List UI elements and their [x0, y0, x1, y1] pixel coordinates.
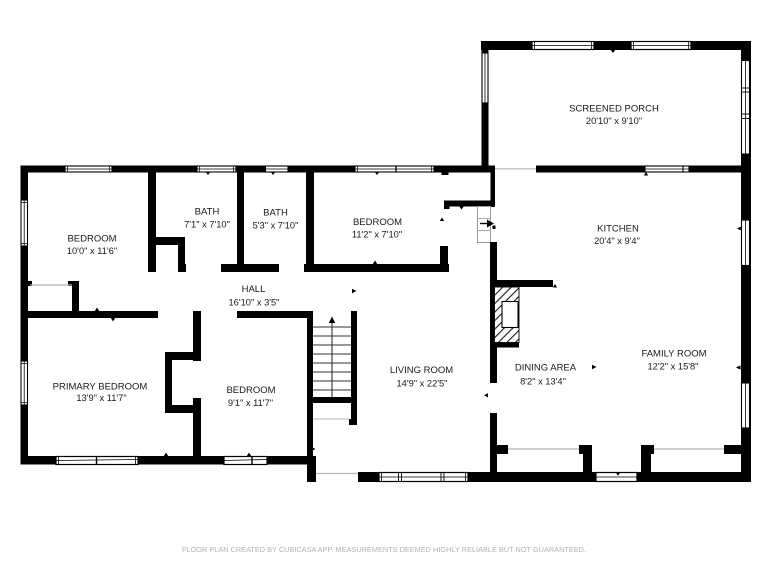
svg-text:20'10" x 9'10": 20'10" x 9'10": [586, 116, 642, 126]
svg-text:DINING AREA: DINING AREA: [515, 363, 577, 374]
svg-text:BEDROOM: BEDROOM: [353, 217, 402, 228]
svg-text:FAMILY ROOM: FAMILY ROOM: [641, 349, 706, 360]
svg-text:10'0" x 11'6": 10'0" x 11'6": [67, 246, 117, 256]
svg-text:FLOOR PLAN CREATED BY CUBICASA: FLOOR PLAN CREATED BY CUBICASA APP. MEAS…: [182, 545, 586, 554]
svg-text:BEDROOM: BEDROOM: [226, 385, 275, 396]
svg-text:KITCHEN: KITCHEN: [597, 224, 639, 235]
svg-text:SCREENED PORCH: SCREENED PORCH: [569, 104, 659, 115]
svg-text:PRIMARY BEDROOM: PRIMARY BEDROOM: [53, 382, 148, 393]
svg-text:20'4" x 9'4": 20'4" x 9'4": [594, 236, 640, 246]
svg-text:HALL: HALL: [242, 284, 266, 295]
svg-text:7'1" x 7'10": 7'1" x 7'10": [184, 220, 230, 230]
svg-text:BEDROOM: BEDROOM: [67, 234, 116, 245]
svg-text:8'2" x 13'4": 8'2" x 13'4": [520, 377, 566, 387]
svg-text:BATH: BATH: [263, 208, 288, 219]
svg-text:16'10" x 3'5": 16'10" x 3'5": [229, 298, 280, 308]
svg-text:14'9" x 22'5": 14'9" x 22'5": [397, 379, 448, 389]
svg-text:13'9" x 11'7": 13'9" x 11'7": [76, 393, 126, 403]
svg-text:9'1" x 11'7": 9'1" x 11'7": [228, 398, 273, 408]
svg-text:LIVING ROOM: LIVING ROOM: [390, 365, 453, 376]
svg-text:12'2" x 15'8": 12'2" x 15'8": [648, 362, 699, 372]
svg-text:5'3" x 7'10": 5'3" x 7'10": [253, 221, 299, 231]
svg-text:BATH: BATH: [195, 207, 220, 218]
svg-text:11'2" x 7'10": 11'2" x 7'10": [352, 230, 402, 240]
